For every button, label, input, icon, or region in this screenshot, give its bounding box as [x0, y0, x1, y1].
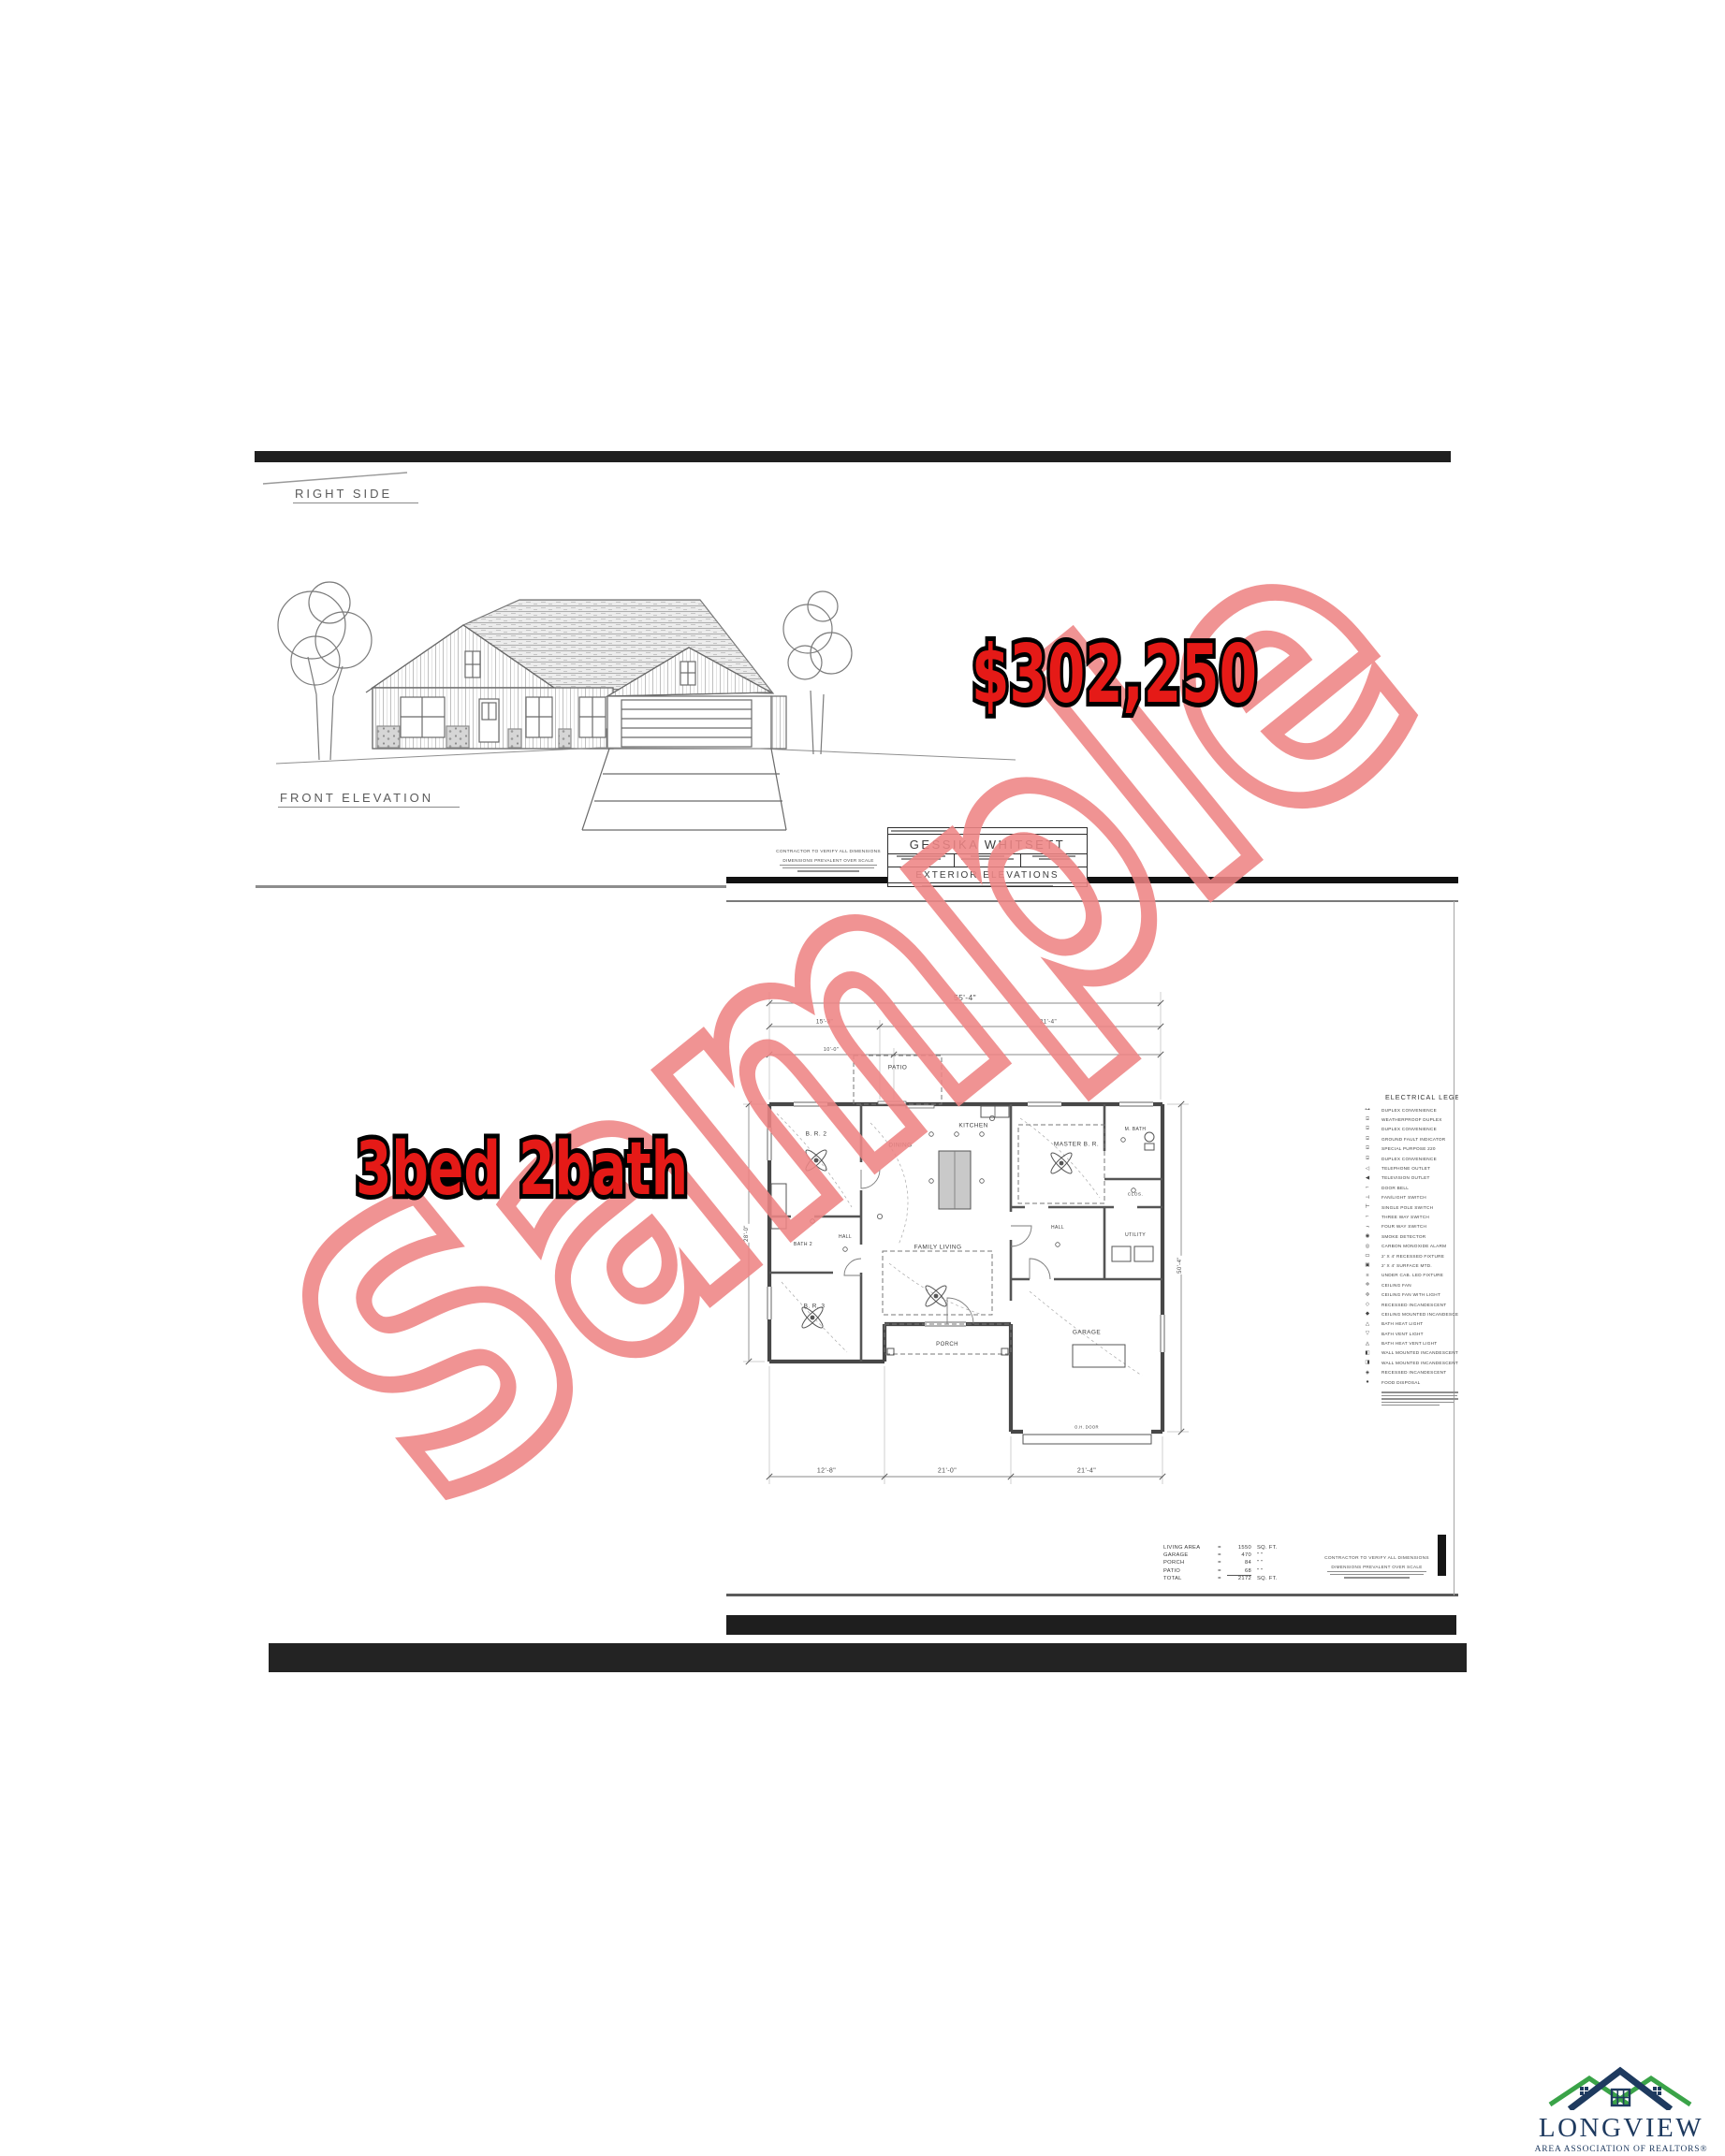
legend-item-label: FAN/LIGHT SWITCH: [1381, 1195, 1426, 1200]
fine-print-line: [782, 867, 874, 869]
area-table-cell: 470: [1227, 1552, 1251, 1558]
title-block-client-row: GESSIKA WHITSETT: [888, 835, 1087, 854]
note-line: DIMENSIONS PREVALENT OVER SCALE: [1324, 1565, 1429, 1569]
longview-logo: LONGVIEW AREA ASSOCIATION OF REALTORS®: [1514, 2063, 1725, 2156]
area-table-cell: 1550: [1227, 1545, 1251, 1551]
logo-subtitle: AREA ASSOCIATION OF REALTORS®: [1514, 2145, 1725, 2154]
dimension-label: 55'-4": [953, 993, 977, 1002]
area-table-cell: =: [1212, 1560, 1227, 1566]
area-table-row: PATIO=68" ": [1163, 1567, 1304, 1575]
legend-symbol-icon: ⍈: [1353, 1145, 1381, 1152]
title-block-sheet-row: EXTERIOR ELEVATIONS: [888, 867, 1087, 883]
legend-item: ◨WALL MOUNTED INCANDESCENT: [1353, 1358, 1458, 1367]
legend-item-label: 2' X 4' RECESSED FIXTURE: [1381, 1254, 1444, 1259]
area-table-cell: PORCH: [1163, 1560, 1212, 1566]
note-line: DIMENSIONS PREVALENT OVER SCALE: [775, 858, 882, 863]
legend-symbol-icon: ◎: [1353, 1244, 1381, 1249]
legend-symbol-icon: ◀: [1353, 1175, 1381, 1181]
legend-item-label: BATH HEAT VENT LIGHT: [1381, 1341, 1437, 1346]
legend-symbol-icon: △: [1353, 1321, 1381, 1327]
area-table-cell: TOTAL: [1163, 1576, 1212, 1581]
info-cell: [888, 853, 955, 867]
legend-item: ◇RECESSED INCANDESCENT: [1353, 1300, 1458, 1309]
note-line: CONTRACTOR TO VERIFY ALL DIMENSIONS: [775, 850, 882, 854]
legend-item-label: BATH VENT LIGHT: [1381, 1332, 1424, 1336]
dimension-label: 10'-0": [823, 1047, 840, 1053]
room-label: UTILITY: [1125, 1232, 1146, 1238]
legend-item-label: 2' X 4' SURFACE MTD.: [1381, 1263, 1432, 1268]
legend-item: ◀TELEVISION OUTLET: [1353, 1173, 1458, 1183]
logo-title: LONGVIEW: [1514, 2115, 1725, 2142]
legend-item-label: BATH HEAT LIGHT: [1381, 1321, 1423, 1326]
legend-items: ⊶DUPLEX CONVENIENCE⍈WEATHERPROOF DUPLEX⍈…: [1353, 1105, 1458, 1387]
sheet-title: EXTERIOR ELEVATIONS: [915, 870, 1059, 881]
area-table-cell: 84: [1227, 1560, 1251, 1566]
legend-item: ⌐DOOR BELL: [1353, 1183, 1458, 1192]
legend-item-label: WALL MOUNTED INCANDESCENT: [1381, 1350, 1458, 1355]
dimension-label: 50'-4": [1177, 1256, 1183, 1275]
fine-print-line: [797, 870, 859, 872]
electrical-legend: ELECTRICAL LEGEND ⊶DUPLEX CONVENIENCE⍈WE…: [1353, 1093, 1458, 1422]
area-table-cell: " ": [1251, 1560, 1296, 1566]
area-table-row: TOTAL=2172SQ. FT.: [1163, 1575, 1304, 1582]
legend-item-label: UNDER CAB. LED FIXTURE: [1381, 1273, 1443, 1277]
area-table-cell: SQ. FT.: [1251, 1545, 1296, 1551]
legend-symbol-icon: ●: [1353, 1379, 1381, 1385]
legend-item: ⊣FAN/LIGHT SWITCH: [1353, 1193, 1458, 1202]
front-elevation-drawing: [276, 582, 1016, 830]
legend-item-label: DUPLEX CONVENIENCE: [1381, 1157, 1437, 1161]
legend-item-label: TELEVISION OUTLET: [1381, 1175, 1430, 1180]
dimension-label: 31'-4": [1039, 1019, 1058, 1026]
legend-symbol-icon: ⍈: [1353, 1116, 1381, 1123]
legend-symbol-icon: ◧: [1353, 1350, 1381, 1356]
area-table-cell: SQ. FT.: [1251, 1576, 1296, 1581]
title-block: GESSIKA WHITSETT EXTERIOR ELEVATIONS: [887, 827, 1088, 887]
legend-symbol-icon: ¬: [1353, 1224, 1381, 1230]
legend-item-label: DUPLEX CONVENIENCE: [1381, 1108, 1437, 1113]
legend-item: ◁TELEPHONE OUTLET: [1353, 1163, 1458, 1173]
room-label: FAMILY LIVING: [914, 1245, 962, 1251]
title-block-top-strip: [888, 828, 1087, 835]
legend-item-label: CEILING MOUNTED INCANDESCENT: [1381, 1312, 1458, 1317]
legend-item-label: FOOD DISPOSAL: [1381, 1380, 1421, 1385]
legend-symbol-icon: ◉: [1353, 1233, 1381, 1239]
room-label: PORCH: [936, 1342, 958, 1347]
legend-item-label: CEILING FAN: [1381, 1283, 1411, 1288]
legend-symbol-icon: ⊢: [1353, 1204, 1381, 1210]
legend-item-label: DOOR BELL: [1381, 1186, 1409, 1190]
legend-item: ⍈DUPLEX CONVENIENCE: [1353, 1154, 1458, 1163]
legend-symbol-icon: ◈: [1353, 1370, 1381, 1376]
legend-item: ◈RECESSED INCANDESCENT: [1353, 1368, 1458, 1377]
legend-item: ◎CARBON MONOXIDE ALARM: [1353, 1241, 1458, 1250]
room-label: B. R. 2: [806, 1131, 827, 1138]
room-label: DINING: [888, 1143, 912, 1149]
area-table-cell: =: [1212, 1576, 1227, 1581]
legend-symbol-icon: ⍈: [1353, 1156, 1381, 1162]
legend-item-label: DUPLEX CONVENIENCE: [1381, 1127, 1437, 1131]
title-block-bottom-strip: [888, 883, 1087, 888]
room-label: KITCHEN: [958, 1123, 987, 1129]
area-table: LIVING AREA=1550SQ. FT.GARAGE=470" "PORC…: [1163, 1544, 1304, 1582]
legend-symbol-icon: ◁: [1353, 1166, 1381, 1172]
legend-item: ◬BATH HEAT VENT LIGHT: [1353, 1338, 1458, 1347]
dimension-label: 28'-0": [744, 1224, 750, 1243]
room-label: MASTER B. R.: [1054, 1142, 1099, 1148]
legend-symbol-icon: ◆: [1353, 1311, 1381, 1317]
legend-symbol-icon: ⍈: [1353, 1136, 1381, 1143]
legend-item: ◧WALL MOUNTED INCANDESCENT: [1353, 1348, 1458, 1358]
area-table-cell: GARAGE: [1163, 1552, 1212, 1558]
client-name: GESSIKA WHITSETT: [910, 838, 1065, 852]
legend-item-label: FOUR WAY SWITCH: [1381, 1224, 1426, 1229]
area-table-cell: LIVING AREA: [1163, 1545, 1212, 1551]
fine-print-line: [1344, 1577, 1409, 1579]
logo-roofs-icon: [1514, 2063, 1725, 2110]
legend-symbol-icon: ⌐: [1353, 1185, 1381, 1190]
info-cell: [955, 853, 1021, 867]
legend-item: ▣2' X 4' SURFACE MTD.: [1353, 1260, 1458, 1270]
room-label: HALL: [839, 1234, 852, 1240]
legend-item-label: SMOKE DETECTOR: [1381, 1234, 1425, 1239]
elevation-contractor-notes: CONTRACTOR TO VERIFY ALL DIMENSIONS DIME…: [775, 850, 882, 872]
legend-symbol-icon: ◬: [1353, 1341, 1381, 1347]
area-table-cell: 2172: [1227, 1575, 1251, 1581]
legend-item-label: SPECIAL PURPOSE 220: [1381, 1146, 1436, 1151]
legend-item: ⍈GROUND FAULT INDICATOR: [1353, 1134, 1458, 1144]
legend-item: ≡UNDER CAB. LED FIXTURE: [1353, 1271, 1458, 1280]
area-table-cell: =: [1212, 1568, 1227, 1574]
room-label: O.H. DOOR: [1074, 1425, 1099, 1430]
legend-item: ✢CEILING FAN WITH LIGHT: [1353, 1289, 1458, 1299]
legend-item-label: CARBON MONOXIDE ALARM: [1381, 1244, 1446, 1248]
note-line: CONTRACTOR TO VERIFY ALL DIMENSIONS: [1324, 1556, 1429, 1561]
legend-symbol-icon: ▣: [1353, 1262, 1381, 1268]
legend-item-label: WALL MOUNTED INCANDESCENT: [1381, 1361, 1458, 1365]
floor-plan-drawing: [743, 992, 1189, 1484]
legend-item-label: GROUND FAULT INDICATOR: [1381, 1137, 1445, 1142]
legend-item-label: CEILING FAN WITH LIGHT: [1381, 1292, 1440, 1297]
legend-symbol-icon: ✢: [1353, 1292, 1381, 1298]
legend-item-label: RECESSED INCANDESCENT: [1381, 1303, 1446, 1307]
dimension-label: 15'-8": [815, 1019, 834, 1026]
info-cell: [1021, 853, 1087, 867]
area-table-cell: PATIO: [1163, 1568, 1212, 1574]
fine-print-line: [780, 865, 878, 867]
legend-item-label: WEATHERPROOF DUPLEX: [1381, 1117, 1442, 1122]
area-table-cell: " ": [1251, 1568, 1296, 1574]
area-table-row: PORCH=84" ": [1163, 1559, 1304, 1566]
legend-symbol-icon: ◨: [1353, 1360, 1381, 1365]
legend-symbol-icon: ⊣: [1353, 1195, 1381, 1201]
legend-item: ✛CEILING FAN: [1353, 1280, 1458, 1289]
legend-symbol-icon: ⊶: [1353, 1107, 1381, 1113]
area-table-row: GARAGE=470" ": [1163, 1551, 1304, 1559]
legend-symbol-icon: ⌐: [1353, 1214, 1381, 1219]
legend-symbol-icon: ◇: [1353, 1302, 1381, 1307]
legend-item: ⍈DUPLEX CONVENIENCE: [1353, 1125, 1458, 1134]
drawings-svg: [0, 0, 1725, 2156]
room-label: BATH 2: [794, 1242, 812, 1247]
fine-print-line: [1330, 1574, 1425, 1576]
area-table-cell: =: [1212, 1545, 1227, 1551]
legend-item-label: SINGLE POLE SWITCH: [1381, 1205, 1433, 1210]
legend-item: ⌐THREE WAY SWITCH: [1353, 1212, 1458, 1221]
area-table-cell: " ": [1251, 1552, 1296, 1558]
legend-symbol-icon: ✛: [1353, 1282, 1381, 1288]
legend-item-label: TELEPHONE OUTLET: [1381, 1166, 1430, 1171]
flyer-page: RIGHT SIDE FRONT ELEVATION: [0, 0, 1725, 2156]
legend-item: ⊢SINGLE POLE SWITCH: [1353, 1202, 1458, 1212]
title-block-info-row: [888, 854, 1087, 867]
plan-contractor-notes: CONTRACTOR TO VERIFY ALL DIMENSIONS DIME…: [1324, 1556, 1429, 1579]
legend-title: ELECTRICAL LEGEND: [1385, 1093, 1458, 1101]
room-label: CLOS.: [1128, 1193, 1143, 1198]
legend-item: ◉SMOKE DETECTOR: [1353, 1231, 1458, 1241]
room-label: B. R. 3: [804, 1304, 826, 1310]
legend-item-label: THREE WAY SWITCH: [1381, 1215, 1429, 1219]
dimension-label: 21'-4": [1076, 1468, 1097, 1475]
legend-item-label: RECESSED INCANDESCENT: [1381, 1370, 1446, 1375]
legend-item: ⍈WEATHERPROOF DUPLEX: [1353, 1114, 1458, 1124]
fine-print-line: [1327, 1571, 1425, 1573]
room-label: M. BATH: [1125, 1127, 1147, 1132]
dimension-label: 21'-0": [937, 1468, 958, 1475]
area-table-cell: =: [1212, 1552, 1227, 1558]
legend-symbol-icon: ▭: [1353, 1253, 1381, 1259]
legend-item: ▽BATH VENT LIGHT: [1353, 1329, 1458, 1338]
legend-symbol-icon: ▽: [1353, 1331, 1381, 1336]
legend-item: ●FOOD DISPOSAL: [1353, 1377, 1458, 1387]
room-label: HALL: [1051, 1225, 1064, 1231]
legend-notes: [1381, 1391, 1458, 1406]
legend-item: ◆CEILING MOUNTED INCANDESCENT: [1353, 1309, 1458, 1318]
legend-item: △BATH HEAT LIGHT: [1353, 1319, 1458, 1329]
legend-item: ⍈SPECIAL PURPOSE 220: [1353, 1144, 1458, 1154]
legend-item: ▭2' X 4' RECESSED FIXTURE: [1353, 1251, 1458, 1260]
area-table-row: LIVING AREA=1550SQ. FT.: [1163, 1544, 1304, 1551]
room-label: PATIO: [888, 1065, 908, 1071]
area-table-cell: 68: [1227, 1568, 1251, 1574]
dimension-label: 12'-8": [816, 1468, 837, 1475]
room-label: GARAGE: [1073, 1330, 1101, 1336]
legend-symbol-icon: ≡: [1353, 1273, 1381, 1278]
legend-symbol-icon: ⍈: [1353, 1126, 1381, 1132]
legend-item: ¬FOUR WAY SWITCH: [1353, 1222, 1458, 1231]
legend-item: ⊶DUPLEX CONVENIENCE: [1353, 1105, 1458, 1114]
